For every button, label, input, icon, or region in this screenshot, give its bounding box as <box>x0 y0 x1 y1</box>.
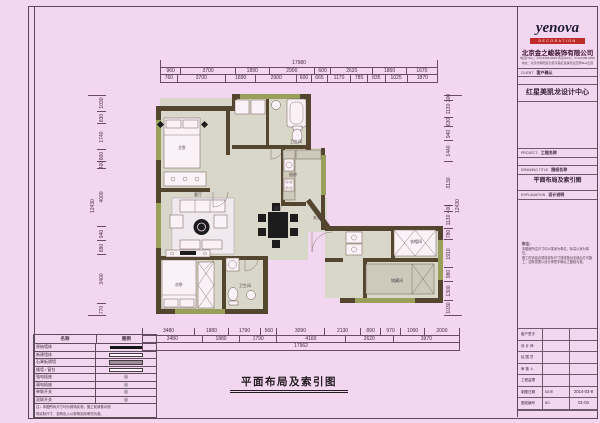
legend-symbol <box>109 368 143 372</box>
signature-row: 客户签字 <box>518 329 597 341</box>
legend-label: 弱电插座 <box>34 382 96 389</box>
drawing-title-label: DRAWING TITLE <box>521 168 548 172</box>
dim-value: 890 <box>360 328 380 336</box>
signature-table: 客户签字 设 计 师 绘 图 员 审 核 人 工程监理 制图日期 <box>518 328 597 410</box>
design-center-name: 红星美凯龙设计中心 <box>518 84 597 102</box>
room-label-bath2: 卫生间 <box>239 282 251 288</box>
dim-value: 1880 <box>194 328 228 336</box>
explanation-label: EXPLANATION <box>521 193 545 197</box>
dim-value: 1790 <box>228 328 261 336</box>
dim-value: 835 <box>367 75 384 83</box>
signature-value: NO. <box>543 401 569 405</box>
signature-label: 制图日期 <box>518 387 543 398</box>
title-block-bottom-line <box>518 410 597 411</box>
dim-chain-bottom: 3480188017905603090213089097010002000 34… <box>142 328 460 351</box>
legend-symbol <box>124 374 128 380</box>
dim-value: 4160 <box>276 336 345 344</box>
toilet-2 <box>228 288 238 306</box>
bathtub <box>287 99 306 127</box>
legend-symbol <box>124 389 128 395</box>
logo-subtitle: DECORATION <box>530 38 585 44</box>
room-label-kitchen: 厨房 <box>289 171 297 177</box>
drawing-sheet: 主卧 客厅 餐厅 厨房 卫生间 次卧 卫生间 玄关 衣帽间 储藏间 17980 … <box>0 0 600 423</box>
project-label: PROJECT: <box>521 151 538 155</box>
company-contact-1: 电话(TEL)：010-8488-8848 传真(FAX)：010-8488-8… <box>518 56 597 60</box>
room-label-master: 主卧 <box>178 144 186 150</box>
signature-label: 设 计 师 <box>518 341 543 352</box>
signature-label: 客户签字 <box>518 329 543 340</box>
dim-overall-top: 17980 <box>160 60 437 68</box>
dim-value: 3090 <box>276 328 324 336</box>
legend-row: 强电插座 <box>34 374 156 382</box>
dim-value: 1440 <box>446 145 452 156</box>
legend-note-line: 注：本图所标尺寸均为现场实测，施工前请核对现 <box>34 404 156 411</box>
dim-value: 1025 <box>385 75 407 83</box>
dim-value: 1910 <box>446 248 452 259</box>
dim-value: 3700 <box>180 68 235 76</box>
dim-value: 800 <box>99 152 105 160</box>
dim-value: 2620 <box>330 68 372 76</box>
legend-row: 弱电插座 <box>34 382 156 390</box>
drawing-name: 平面布局及索引图 <box>518 175 597 188</box>
washer <box>226 258 239 271</box>
signature-label: 绘 图 员 <box>518 352 543 363</box>
dim-value: 770 <box>99 305 105 313</box>
dim-value: 780 <box>446 230 452 238</box>
dim-value: 4000 <box>99 192 105 203</box>
project-row: PROJECT: 工程名称 <box>518 148 597 158</box>
room-label-cloak: 衣帽间 <box>410 238 422 244</box>
sink-1 <box>272 101 281 110</box>
dim-chain-right: 3001130630940144031304001130780191098013… <box>444 95 462 315</box>
signature-extra <box>569 364 597 375</box>
legend-row: 石膏板隔墙 <box>34 359 156 367</box>
legend-table: 名称 图例 原始墙体 新建墙体 石膏板隔墙 矮墙 / 窗台 强电插座 弱电插座 <box>33 334 157 418</box>
dim-chain-top: 17980 960370018902900600262018601670 760… <box>160 60 438 83</box>
dim-value: 1130 <box>446 215 452 226</box>
signature-extra <box>569 352 597 363</box>
logo: yenova <box>518 20 597 37</box>
dim-overall-right: 12430 <box>455 199 461 213</box>
legend-row: 矮墙 / 窗台 <box>34 367 156 375</box>
dim-value: 630 <box>446 118 452 126</box>
signature-extra: 01-04 <box>569 398 597 409</box>
sink-2 <box>247 291 256 300</box>
dim-value: 600 <box>314 68 330 76</box>
room-label-living: 客厅 <box>194 191 202 197</box>
notes-line: 工，如有变更以设计师签字确认之图纸为准。 <box>522 260 594 265</box>
tv-cabinet <box>166 250 210 257</box>
legend-header-name: 名称 <box>34 335 97 343</box>
dim-value: 1790 <box>239 336 276 344</box>
title-block: yenova DECORATION 北京金之峻装饰有限公司 电话(TEL)：01… <box>517 6 597 417</box>
project-value: 工程名称 <box>541 150 557 156</box>
coffee-table <box>194 219 210 235</box>
dim-value: 970 <box>380 328 400 336</box>
legend-symbol <box>109 360 143 365</box>
legend-label: 新建墙体 <box>34 352 96 359</box>
dim-value: 940 <box>99 229 105 237</box>
signature-label: 审 核 人 <box>518 364 543 375</box>
legend-row: 新建墙体 <box>34 352 156 360</box>
room-label-storage: 储藏间 <box>391 277 403 283</box>
client-label: CLIENT <box>521 71 533 75</box>
legend-row: 原始墙体 <box>34 344 156 352</box>
dim-value: 1890 <box>235 68 269 76</box>
signature-extra: 2014-03-8 <box>569 387 597 398</box>
dim-value: 1000 <box>400 328 424 336</box>
dim-value: 940 <box>446 130 452 138</box>
dim-chain-left: 12430 1030830174080040040009408903400770 <box>88 95 106 315</box>
dim-value: 1740 <box>99 131 105 142</box>
signature-extra <box>569 375 597 386</box>
legend-symbol <box>109 353 143 357</box>
dim-value: 1670 <box>406 68 437 76</box>
legend-label: 单联开关 <box>34 389 96 396</box>
signature-label: 工程监理 <box>518 375 543 386</box>
legend-label: 矮墙 / 窗台 <box>34 367 96 374</box>
drawing-title-row: DRAWING TITLE 图纸名称 <box>518 165 597 175</box>
dim-value: 2900 <box>255 75 295 83</box>
dim-value: 665 <box>311 75 327 83</box>
legend-row: 单联开关 <box>34 389 156 397</box>
legend-label: 强电插座 <box>34 374 96 381</box>
dim-value: 3130 <box>446 178 452 189</box>
dim-value: 980 <box>446 270 452 278</box>
room-label-bath1: 卫生间 <box>290 138 302 144</box>
title-block-notes: 附注： 本图纸所注尺寸均以毫米为单位，标高以米为单位。施工时请结合现场实际尺寸放… <box>522 242 594 265</box>
signature-row: 制图日期 DATE 2014-03-8 <box>518 387 597 399</box>
signature-label: 图纸编号 <box>518 398 543 409</box>
dim-overall-bottom: 17962 <box>142 343 459 351</box>
room-label-entry: 玄关 <box>313 214 321 220</box>
legend-header-symbol: 图例 <box>97 336 156 342</box>
dim-value: 2900 <box>269 68 314 76</box>
legend-symbol <box>124 397 128 403</box>
signature-row: 设 计 师 <box>518 341 597 353</box>
legend-row: 双联开关 <box>34 397 156 405</box>
dim-overall-left: 12430 <box>90 199 96 213</box>
dim-value: 600 <box>296 75 311 83</box>
legend-header: 名称 图例 <box>34 335 156 344</box>
legend-label: 双联开关 <box>34 397 96 404</box>
dim-value: 1030 <box>99 98 105 109</box>
dim-value: 2130 <box>324 328 361 336</box>
dim-value: 1890 <box>225 75 256 83</box>
dim-value: 2620 <box>345 336 393 344</box>
drawing-title-value: 图纸名称 <box>551 167 567 173</box>
dim-value: 1880 <box>202 336 240 344</box>
client-value: 客户确认 <box>536 70 552 76</box>
dim-value: 1300 <box>446 285 452 296</box>
room-label-dining: 餐厅 <box>274 205 282 211</box>
signature-row: 绘 图 员 <box>518 352 597 364</box>
legend-note-line: 场实际尺寸，如有出入以现场实际情况为准。 <box>34 411 156 418</box>
legend-symbol <box>124 382 128 388</box>
dim-value: 960 <box>160 68 180 76</box>
explanation-value: 设计说明 <box>548 192 564 198</box>
drawing-title: 平面布局及索引图 <box>230 374 348 393</box>
company-contact-2: 地址：北京市朝阳区北苑东路红星美凯龙至尊Mall五层 <box>518 61 597 65</box>
dim-value: 1870 <box>407 75 437 83</box>
dim-value: 890 <box>99 243 105 251</box>
signature-row: 图纸编号 NO. 01-04 <box>518 398 597 410</box>
floor-plan: 主卧 客厅 餐厅 厨房 卫生间 次卧 卫生间 玄关 衣帽间 储藏间 <box>85 55 490 360</box>
dim-value: 560 <box>260 328 276 336</box>
dim-value: 3400 <box>99 273 105 284</box>
dim-value: 2000 <box>424 328 459 336</box>
explanation-row: EXPLANATION 设计说明 <box>518 190 597 200</box>
dim-value: 1130 <box>446 103 452 114</box>
dresser <box>164 172 206 186</box>
dim-value: 3970 <box>393 336 459 344</box>
dim-value: 1030 <box>446 302 452 313</box>
legend-label: 原始墙体 <box>34 344 96 351</box>
signature-value: DATE <box>543 390 569 394</box>
signature-extra <box>569 341 597 352</box>
dim-value: 830 <box>99 113 105 121</box>
dim-value: 760 <box>160 75 177 83</box>
wardrobe-2 <box>198 262 214 308</box>
signature-row: 审 核 人 <box>518 364 597 376</box>
room-label-bed2: 次卧 <box>175 281 183 287</box>
signature-extra <box>569 329 597 340</box>
client-row: CLIENT 客户确认 <box>518 68 597 77</box>
dim-value: 785 <box>350 75 367 83</box>
dim-value: 1860 <box>372 68 405 76</box>
notes-line: 本图纸所注尺寸均以毫米为单位，标高以米为单位。 <box>522 247 594 256</box>
legend-label: 石膏板隔墙 <box>34 359 96 366</box>
legend-symbol <box>110 346 142 350</box>
dim-value: 3700 <box>177 75 225 83</box>
dim-value: 1170 <box>327 75 350 83</box>
signature-row: 工程监理 <box>518 375 597 387</box>
